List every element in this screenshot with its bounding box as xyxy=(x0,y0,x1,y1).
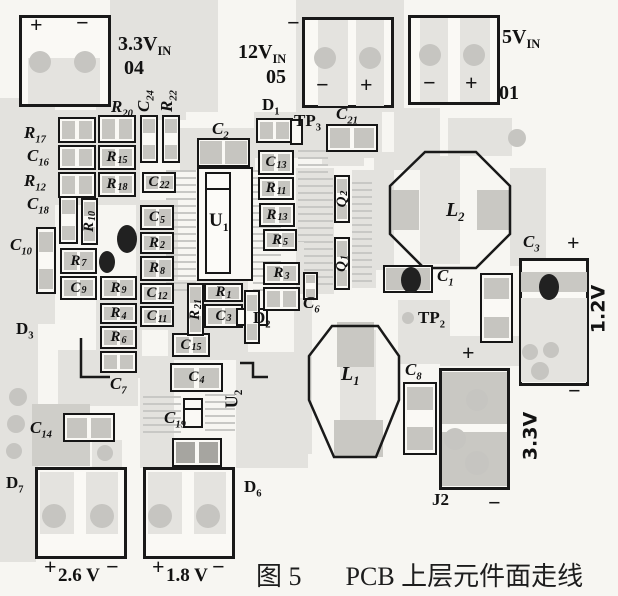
pad xyxy=(62,176,76,194)
label-J2: J2 xyxy=(432,491,449,508)
label-2.6V: 2.6 V xyxy=(58,566,100,585)
label-base: R xyxy=(82,222,97,232)
label-base: D xyxy=(6,473,18,492)
label-subscript: 8 xyxy=(160,267,165,277)
label-subscript: 1 xyxy=(227,291,232,301)
label-C8: C8 xyxy=(405,361,422,383)
polarity-mark: + xyxy=(30,14,43,36)
label-subscript: 2 xyxy=(340,191,350,196)
label-C6: C6 xyxy=(303,294,320,316)
component-Q2-box: Q2 xyxy=(334,175,350,223)
component-R6: R6 xyxy=(100,326,137,349)
component-label: R15 xyxy=(100,147,134,168)
label-base: 1.2V xyxy=(588,285,610,333)
pad xyxy=(62,149,76,166)
component-R1: R1 xyxy=(204,283,243,302)
label-base: C xyxy=(147,309,157,324)
label-subscript: 4 xyxy=(122,312,127,322)
pad-dot xyxy=(543,342,559,358)
pad xyxy=(276,122,289,139)
pad-dot xyxy=(531,362,549,380)
U1-inner-divider xyxy=(205,188,231,190)
component-C21-box xyxy=(326,124,378,152)
label-base: C xyxy=(405,360,416,379)
label-subscript: 8 xyxy=(416,371,421,382)
label-base: R xyxy=(110,281,120,296)
pad xyxy=(104,355,117,369)
polarity-mark: − xyxy=(212,556,225,578)
label-subscript: 14 xyxy=(41,429,52,440)
component-C15: C15 xyxy=(172,333,210,357)
label-subscript: 2 xyxy=(223,130,228,141)
component-R3: R3 xyxy=(263,262,300,285)
label-R12: R12 xyxy=(24,172,46,194)
component-label: Q2 xyxy=(320,193,364,205)
label-subscript: 4 xyxy=(200,376,205,386)
label-subscript: 3 xyxy=(534,243,539,254)
label-base: D xyxy=(253,308,265,327)
component-label: Q1 xyxy=(318,258,367,270)
pad xyxy=(143,119,155,133)
label-base: C xyxy=(134,101,153,112)
label-C1: C1 xyxy=(437,267,454,289)
label-base: U xyxy=(209,210,223,231)
component-label: R18 xyxy=(100,174,134,195)
label-base: 3.3V xyxy=(118,33,157,55)
component-label: R6 xyxy=(102,328,135,347)
label-subscript: 17 xyxy=(35,134,46,145)
pad-dot xyxy=(359,47,381,69)
component-label: C12 xyxy=(142,285,172,302)
label-R22: R22 xyxy=(158,90,180,112)
pad xyxy=(484,317,508,338)
pad xyxy=(267,291,280,307)
label-base: R xyxy=(24,123,35,142)
component-label: R11 xyxy=(260,179,292,198)
pad xyxy=(283,291,296,307)
label-base: R xyxy=(149,261,159,276)
label-D1: D1 xyxy=(262,96,280,118)
pad xyxy=(354,128,373,147)
pad-dot xyxy=(148,504,172,528)
label-base: R xyxy=(70,254,80,269)
label-base: R xyxy=(106,150,116,165)
label-subscript: 5 xyxy=(160,216,165,226)
component-divider xyxy=(184,408,202,410)
label-subscript: IN xyxy=(272,52,286,66)
label-base: R xyxy=(188,310,203,320)
component-R18: R18 xyxy=(98,172,136,197)
pad-dot xyxy=(522,344,538,360)
label-base: C xyxy=(180,338,190,353)
pad xyxy=(39,232,52,252)
component-label: R5 xyxy=(265,231,295,249)
component-R15: R15 xyxy=(98,145,136,170)
label-base: 1.8 V xyxy=(166,565,208,586)
label-subscript: 19 xyxy=(175,419,186,430)
label-subscript: 7 xyxy=(18,484,23,495)
label-subscript: 22 xyxy=(168,90,179,101)
component-label: C22 xyxy=(144,174,174,191)
label-subscript: 3 xyxy=(227,314,232,324)
label-base: C xyxy=(437,266,448,285)
component-C24-box xyxy=(140,115,158,163)
pad-dot xyxy=(466,389,488,411)
component-C4-box: C4 xyxy=(170,363,223,392)
label-base: J2 xyxy=(432,490,449,509)
label-base: C xyxy=(265,155,275,170)
pad xyxy=(306,275,315,283)
component-R4: R4 xyxy=(100,303,137,324)
label-subscript: 2 xyxy=(265,319,270,330)
label-base: 3.3V xyxy=(520,412,542,460)
label-subscript: 2 xyxy=(458,210,464,224)
label-subscript: 12 xyxy=(158,292,168,302)
label-subscript: 24 xyxy=(145,90,156,101)
label-04: 04 xyxy=(124,58,144,78)
label-base: R xyxy=(157,101,176,112)
label-base: C xyxy=(149,210,159,225)
label-base: C xyxy=(10,235,21,254)
pad xyxy=(62,121,76,139)
polarity-mark: + xyxy=(462,342,475,364)
component-pad-block-7 xyxy=(172,438,222,467)
label-base: R xyxy=(273,266,283,281)
component-C2-box xyxy=(197,138,250,167)
label-subscript: 1 xyxy=(223,221,229,234)
label-C14: C14 xyxy=(30,419,52,441)
label-base: R xyxy=(24,171,35,190)
component-label: R9 xyxy=(102,278,135,298)
component-C13: C13 xyxy=(258,150,294,175)
polarity-mark: − xyxy=(76,12,89,34)
component-R2: R2 xyxy=(140,232,174,254)
label-base: C xyxy=(30,418,41,437)
label-D7: D7 xyxy=(6,474,24,496)
component-label: R7 xyxy=(62,250,95,272)
component-label: R3 xyxy=(265,264,298,283)
component-pad-block-2 xyxy=(58,145,96,170)
pad xyxy=(143,145,155,159)
label-subscript: 15 xyxy=(118,156,128,166)
label-base: R xyxy=(110,330,120,345)
label-C18: C18 xyxy=(27,195,49,217)
component-label: C4 xyxy=(172,365,221,390)
component-R11: R11 xyxy=(258,177,294,200)
polarity-mark: + xyxy=(567,232,580,254)
label-subscript: 6 xyxy=(256,488,261,499)
component-C9: C9 xyxy=(60,276,97,300)
label-subscript: 1 xyxy=(340,255,350,260)
label-base: R xyxy=(215,285,225,300)
label-C21: C21 xyxy=(336,105,358,127)
copper-pour xyxy=(374,152,394,270)
polarity-mark: − xyxy=(106,556,119,578)
component-pad-block-1 xyxy=(58,117,96,143)
label-subscript: 15 xyxy=(192,343,202,353)
pad xyxy=(119,119,133,138)
label-D6: D6 xyxy=(244,478,262,500)
label-subscript: 13 xyxy=(278,213,288,223)
pad xyxy=(225,141,247,164)
pad xyxy=(62,200,75,214)
label-base: C xyxy=(27,146,38,165)
polarity-dot xyxy=(539,274,559,300)
label-base: R xyxy=(110,306,120,321)
label-subscript: 11 xyxy=(158,315,167,325)
pad xyxy=(165,119,177,133)
pad-dot xyxy=(196,504,220,528)
polarity-mark: − xyxy=(423,72,436,94)
label-base: L xyxy=(341,363,353,385)
pad-dot xyxy=(6,443,22,459)
label-base: R xyxy=(272,233,282,248)
label-subscript: 2 xyxy=(233,390,245,396)
label-subscript: 9 xyxy=(122,286,127,296)
label-subscript: 9 xyxy=(82,286,87,296)
label-1.8V: 1.8 V xyxy=(166,566,208,585)
polarity-mark: − xyxy=(488,492,501,514)
pad-dot xyxy=(465,451,489,475)
label-D3: D3 xyxy=(16,320,34,342)
component-label: R8 xyxy=(142,258,172,279)
polarity-mark: + xyxy=(152,556,165,578)
pad-dot xyxy=(97,445,113,461)
pad-area xyxy=(337,322,374,367)
label-base: C xyxy=(70,281,80,296)
component-label: C5 xyxy=(142,207,172,228)
pad xyxy=(200,141,222,164)
pad xyxy=(165,145,177,159)
label-base: D xyxy=(16,319,28,338)
component-Q1-box: Q1 xyxy=(334,237,350,290)
label-base: C xyxy=(148,175,158,190)
label-subscript: 2 xyxy=(160,241,165,251)
label-U1: U1 xyxy=(209,211,229,234)
label-5VIN: 5VIN xyxy=(502,27,540,50)
label-subscript: 7 xyxy=(82,259,87,269)
component-C14-box xyxy=(63,413,115,442)
polarity-dot xyxy=(117,225,137,253)
component-label: C13 xyxy=(260,152,292,173)
pad-dot xyxy=(508,129,526,147)
label-subscript: 3 xyxy=(285,272,290,282)
pad xyxy=(79,121,93,139)
label-base: C xyxy=(215,309,225,324)
label-base: C xyxy=(27,194,38,213)
label-base: 04 xyxy=(124,57,144,79)
pad xyxy=(79,176,93,194)
label-R20: R20 xyxy=(111,98,133,120)
label-base: R xyxy=(266,181,276,196)
label-01: 01 xyxy=(499,83,519,103)
label-subscript: 16 xyxy=(38,157,49,168)
component-C19-box xyxy=(183,398,203,428)
label-subscript: 10 xyxy=(21,246,32,257)
component-C22: C22 xyxy=(142,172,176,193)
label-subscript: 1 xyxy=(353,374,359,388)
label-base: D xyxy=(262,95,274,114)
label-base: R xyxy=(111,97,122,116)
label-subscript: IN xyxy=(157,44,171,58)
label-D2: D2 xyxy=(253,309,271,331)
component-C8-box xyxy=(403,382,437,455)
polarity-mark: + xyxy=(465,72,478,94)
label-subscript: 2 xyxy=(440,319,445,330)
label-subscript: 21 xyxy=(347,115,358,126)
component-label: R13 xyxy=(261,205,293,225)
label-subscript: 1 xyxy=(274,106,279,117)
label-3.3VIN: 3.3VIN xyxy=(118,34,171,57)
component-R5: R5 xyxy=(263,229,297,251)
caption-title: PCB 上层元件面走线 xyxy=(346,556,584,593)
label-C24: C24 xyxy=(135,90,157,112)
pad-dot xyxy=(90,504,114,528)
label-base: C xyxy=(212,119,223,138)
component-label: R4 xyxy=(102,305,135,322)
label-base: 12V xyxy=(238,41,272,63)
label-base: R xyxy=(106,177,116,192)
pad-dot xyxy=(419,44,441,66)
component-C5: C5 xyxy=(140,205,174,230)
label-C16: C16 xyxy=(27,147,49,169)
label-base: TP xyxy=(418,308,440,327)
label-3.3V: 3.3V xyxy=(522,412,541,460)
pad xyxy=(407,427,432,449)
component-pad-block-3 xyxy=(58,172,96,198)
label-base: 05 xyxy=(266,66,286,88)
pad-area xyxy=(334,420,383,457)
pad xyxy=(407,387,432,409)
component-R21: R21 xyxy=(187,283,204,336)
caption-number: 图 5 xyxy=(256,556,302,593)
pad xyxy=(91,418,110,438)
component-label: R10 xyxy=(68,215,111,228)
label-base: R xyxy=(266,208,276,223)
pad-dot xyxy=(314,47,336,69)
label-subscript: 1 xyxy=(448,277,453,288)
label-subscript: 5 xyxy=(283,238,288,248)
pad-area xyxy=(477,190,510,230)
label-subscript: 7 xyxy=(121,385,126,396)
pad xyxy=(337,270,347,286)
pad xyxy=(330,128,349,147)
label-subscript: 10 xyxy=(88,211,98,221)
label-base: C xyxy=(146,286,156,301)
pad-dot xyxy=(402,312,414,324)
pad xyxy=(176,442,195,463)
pad xyxy=(39,269,52,289)
component-R7: R7 xyxy=(60,248,97,274)
label-base: C xyxy=(188,370,198,385)
pcb-top-layer-figure: 图 5 PCB 上层元件面走线 R15R18C22R10R7C9R9C5R2R8… xyxy=(0,0,618,596)
pad-dot xyxy=(9,388,27,406)
pad-dot xyxy=(444,428,466,450)
label-U2: U2 xyxy=(223,390,246,409)
pad xyxy=(67,418,86,438)
copper-pour xyxy=(236,352,308,468)
label-subscript: 12 xyxy=(35,182,46,193)
label-subscript: 22 xyxy=(160,181,170,191)
label-C10: C10 xyxy=(10,236,32,258)
pad xyxy=(484,278,508,299)
pad-dot xyxy=(74,51,96,73)
label-base: C xyxy=(523,232,534,251)
label-subscript: IN xyxy=(526,37,540,51)
label-base: Q xyxy=(335,197,350,208)
label-base: TP xyxy=(294,111,316,130)
pad xyxy=(120,355,133,369)
polarity-dot xyxy=(99,251,115,273)
component-label: C15 xyxy=(174,335,208,355)
pad xyxy=(260,122,273,139)
component-R10: R10 xyxy=(81,198,98,245)
copper-pour xyxy=(448,118,512,156)
label-C7: C7 xyxy=(110,375,127,397)
label-base: C xyxy=(303,293,314,312)
label-L1: L1 xyxy=(341,364,359,387)
polarity-mark: − xyxy=(568,380,581,402)
label-subscript: 3 xyxy=(28,330,33,341)
pad-dot xyxy=(7,415,25,433)
label-base: 2.6 V xyxy=(58,565,100,586)
label-base: 5V xyxy=(502,26,526,48)
label-base: R xyxy=(149,236,159,251)
figure-caption: 图 5 PCB 上层元件面走线 xyxy=(256,556,583,593)
label-subscript: 18 xyxy=(118,183,128,193)
polarity-mark: − xyxy=(287,12,300,34)
pad xyxy=(79,149,93,166)
label-TP2: TP2 xyxy=(418,309,445,331)
component-label: R1 xyxy=(206,285,241,300)
component-pad-rect-right xyxy=(480,273,513,343)
component-C12: C12 xyxy=(140,283,174,304)
label-base: L xyxy=(446,199,458,221)
polarity-mark: + xyxy=(360,74,373,96)
label-subscript: 6 xyxy=(122,336,127,346)
label-C2: C2 xyxy=(212,120,229,142)
label-R17: R17 xyxy=(24,124,46,146)
label-subscript: 21 xyxy=(194,299,204,309)
pad xyxy=(102,119,116,138)
component-C11: C11 xyxy=(140,306,174,327)
component-pad-block-5 xyxy=(100,351,137,373)
label-base: C xyxy=(164,408,175,427)
label-12VIN: 12VIN xyxy=(238,42,286,65)
pad-dot xyxy=(463,44,485,66)
component-R8: R8 xyxy=(140,256,174,281)
component-D1-box xyxy=(256,118,293,143)
pad-dot xyxy=(29,51,51,73)
pad-area xyxy=(392,190,419,230)
label-base: Q xyxy=(335,261,350,272)
label-base: U xyxy=(222,395,242,408)
polarity-mark: + xyxy=(44,556,57,578)
label-C19: C19 xyxy=(164,409,186,431)
label-subscript: 20 xyxy=(122,108,133,119)
label-L2: L2 xyxy=(446,200,464,223)
label-subscript: 6 xyxy=(314,304,319,315)
pad-dot xyxy=(42,504,66,528)
label-base: C xyxy=(110,374,121,393)
component-label: R2 xyxy=(142,234,172,252)
label-1.2V: 1.2V xyxy=(590,285,609,333)
pad xyxy=(199,442,218,463)
component-pad-block-6 xyxy=(263,287,300,311)
label-C3: C3 xyxy=(523,233,540,255)
component-label: C9 xyxy=(62,278,95,298)
polarity-dot xyxy=(401,267,421,293)
